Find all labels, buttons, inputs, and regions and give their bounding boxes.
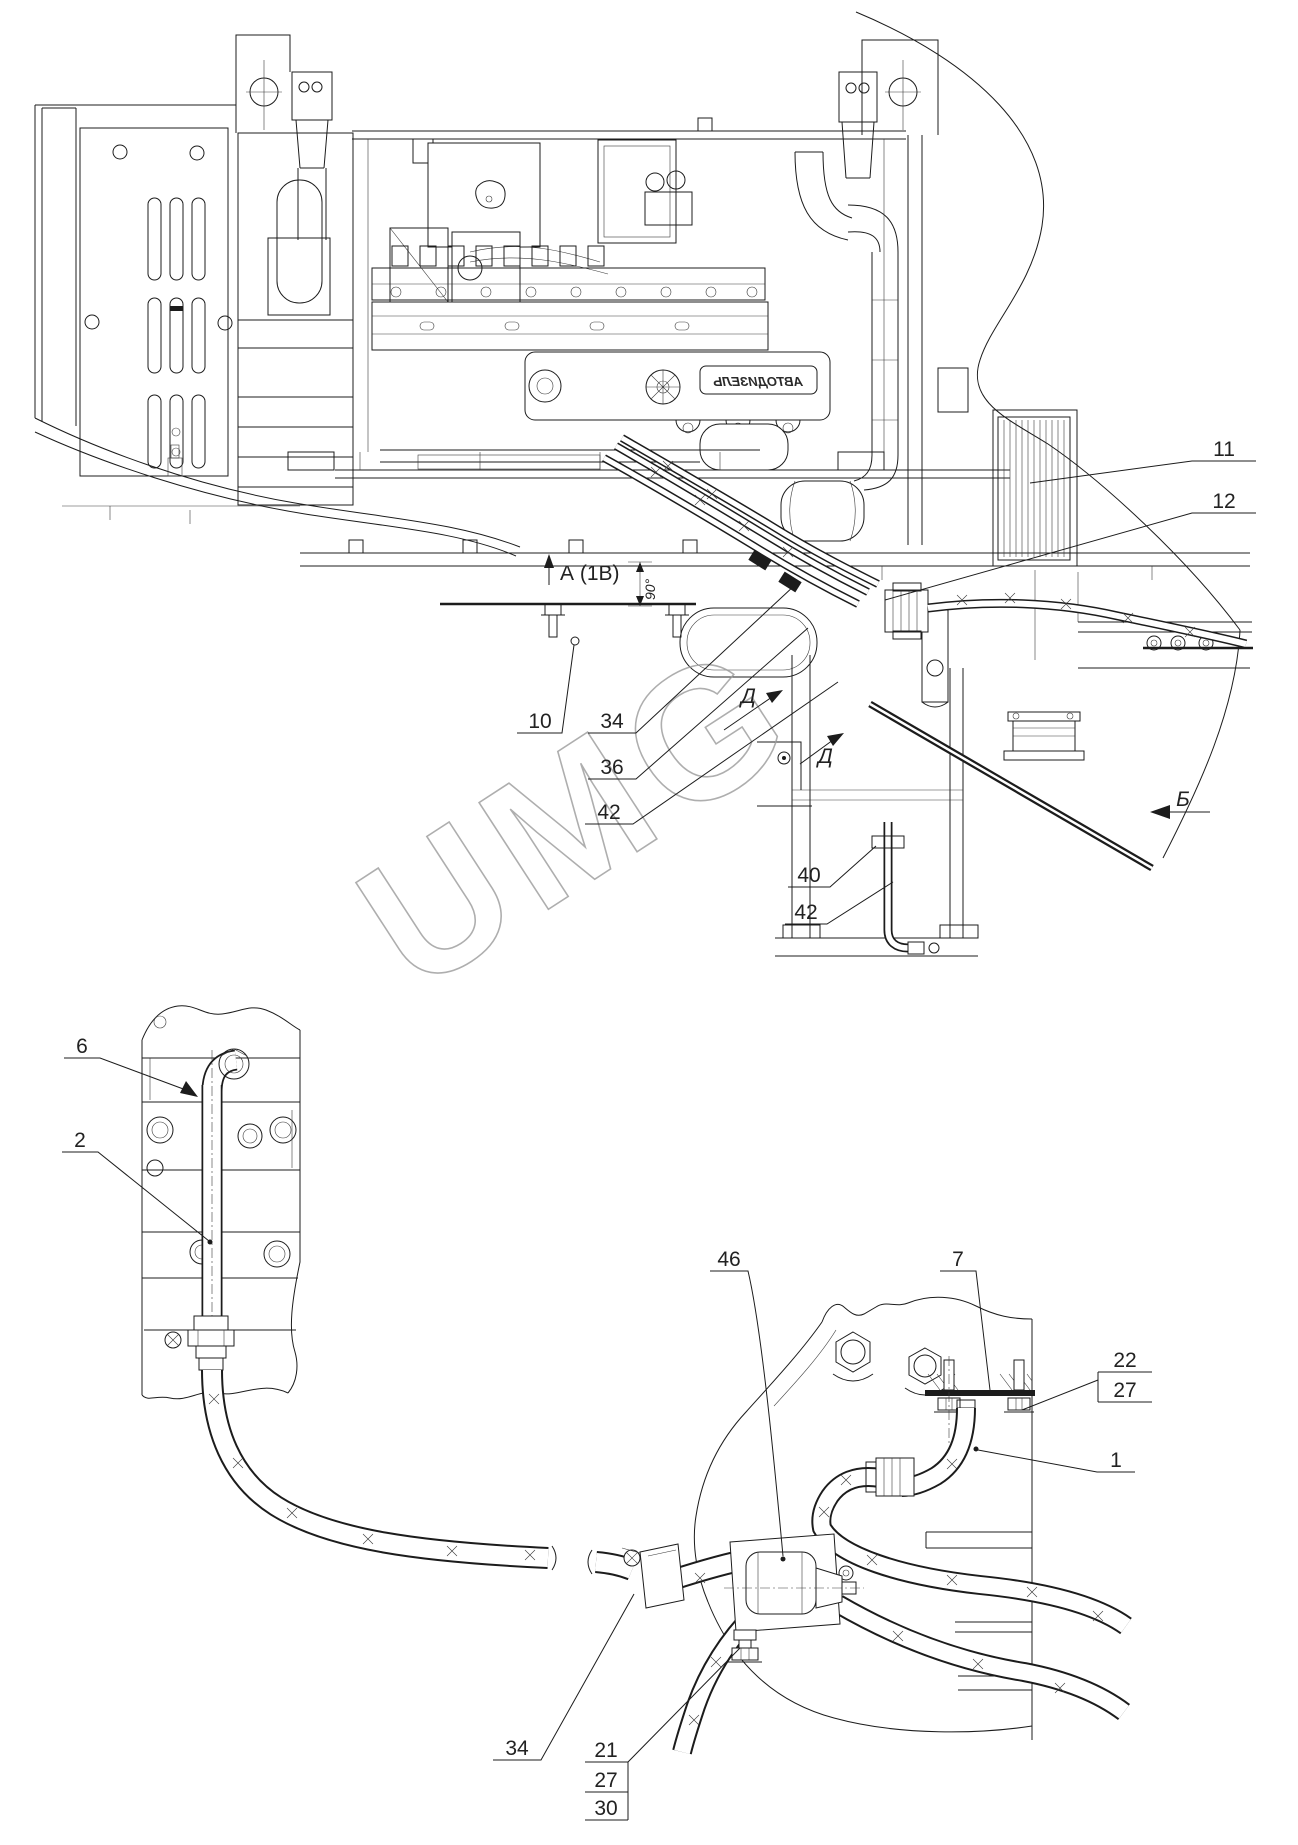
dimension-90: 90° [628, 562, 658, 606]
left-detail-view: 6 2 [62, 1006, 632, 1574]
callout-40: 40 [788, 846, 876, 887]
view-arrow-d-lower-label: Д [816, 745, 833, 768]
parts-diagram: АВТОДИЗЕЛЬ [0, 0, 1298, 1845]
callout-2-label: 2 [74, 1129, 86, 1152]
callout-27-lower-label: 27 [594, 1769, 617, 1792]
main-view: АВТОДИЗЕЛЬ [35, 12, 1256, 1029]
dimension-90-label: 90° [642, 578, 658, 600]
callout-11-label: 11 [1213, 438, 1235, 461]
view-arrow-a-label: А (1В) [560, 562, 620, 585]
callout-30-label: 30 [594, 1797, 617, 1820]
left-detail-callouts: 6 2 [62, 1035, 213, 1245]
right-detail-hoses [660, 1408, 1126, 1752]
engine: АВТОДИЗЕЛЬ [372, 140, 898, 677]
callout-6-label: 6 [76, 1035, 88, 1058]
callout-22-label: 22 [1113, 1349, 1136, 1372]
callout-6: 6 [64, 1035, 198, 1097]
callout-42-upper-label: 42 [597, 801, 620, 824]
left-detail-pipe [165, 1049, 632, 1574]
callout-34-bottom-label: 34 [505, 1737, 529, 1760]
callout-46-label: 46 [717, 1248, 740, 1271]
callout-27-upper-label: 27 [1113, 1379, 1136, 1402]
watermark: UMG [326, 601, 830, 1028]
callout-21-label: 21 [594, 1739, 617, 1762]
callout-42-lower: 42 [785, 882, 893, 924]
view-arrow-b: Б [1150, 788, 1210, 819]
right-detail-view: 46 7 22 27 1 34 [493, 1248, 1152, 1820]
callout-22-27: 22 27 [1022, 1349, 1152, 1410]
callout-36-label: 36 [600, 756, 623, 779]
callout-12-label: 12 [1212, 490, 1235, 513]
callout-46: 46 [710, 1248, 786, 1562]
callout-2: 2 [62, 1129, 213, 1245]
view-arrow-d-upper-label: Д [739, 685, 756, 708]
callout-1: 1 [974, 1447, 1136, 1473]
view-arrow-a: А (1В) [544, 554, 620, 585]
drawing-sheet: АВТОДИЗЕЛЬ [0, 0, 1298, 1845]
callout-1-label: 1 [1110, 1449, 1122, 1472]
callout-10-label: 10 [528, 710, 551, 733]
engine-logo: АВТОДИЗЕЛЬ [713, 374, 804, 389]
callout-40-label: 40 [797, 864, 820, 887]
pump-assembly [622, 1534, 864, 1662]
callout-42-lower-label: 42 [794, 901, 817, 924]
callout-7-label: 7 [952, 1248, 964, 1271]
callout-34-label: 34 [600, 710, 624, 733]
view-arrow-b-label: Б [1176, 788, 1190, 811]
callout-34-bottom: 34 [493, 1594, 634, 1760]
